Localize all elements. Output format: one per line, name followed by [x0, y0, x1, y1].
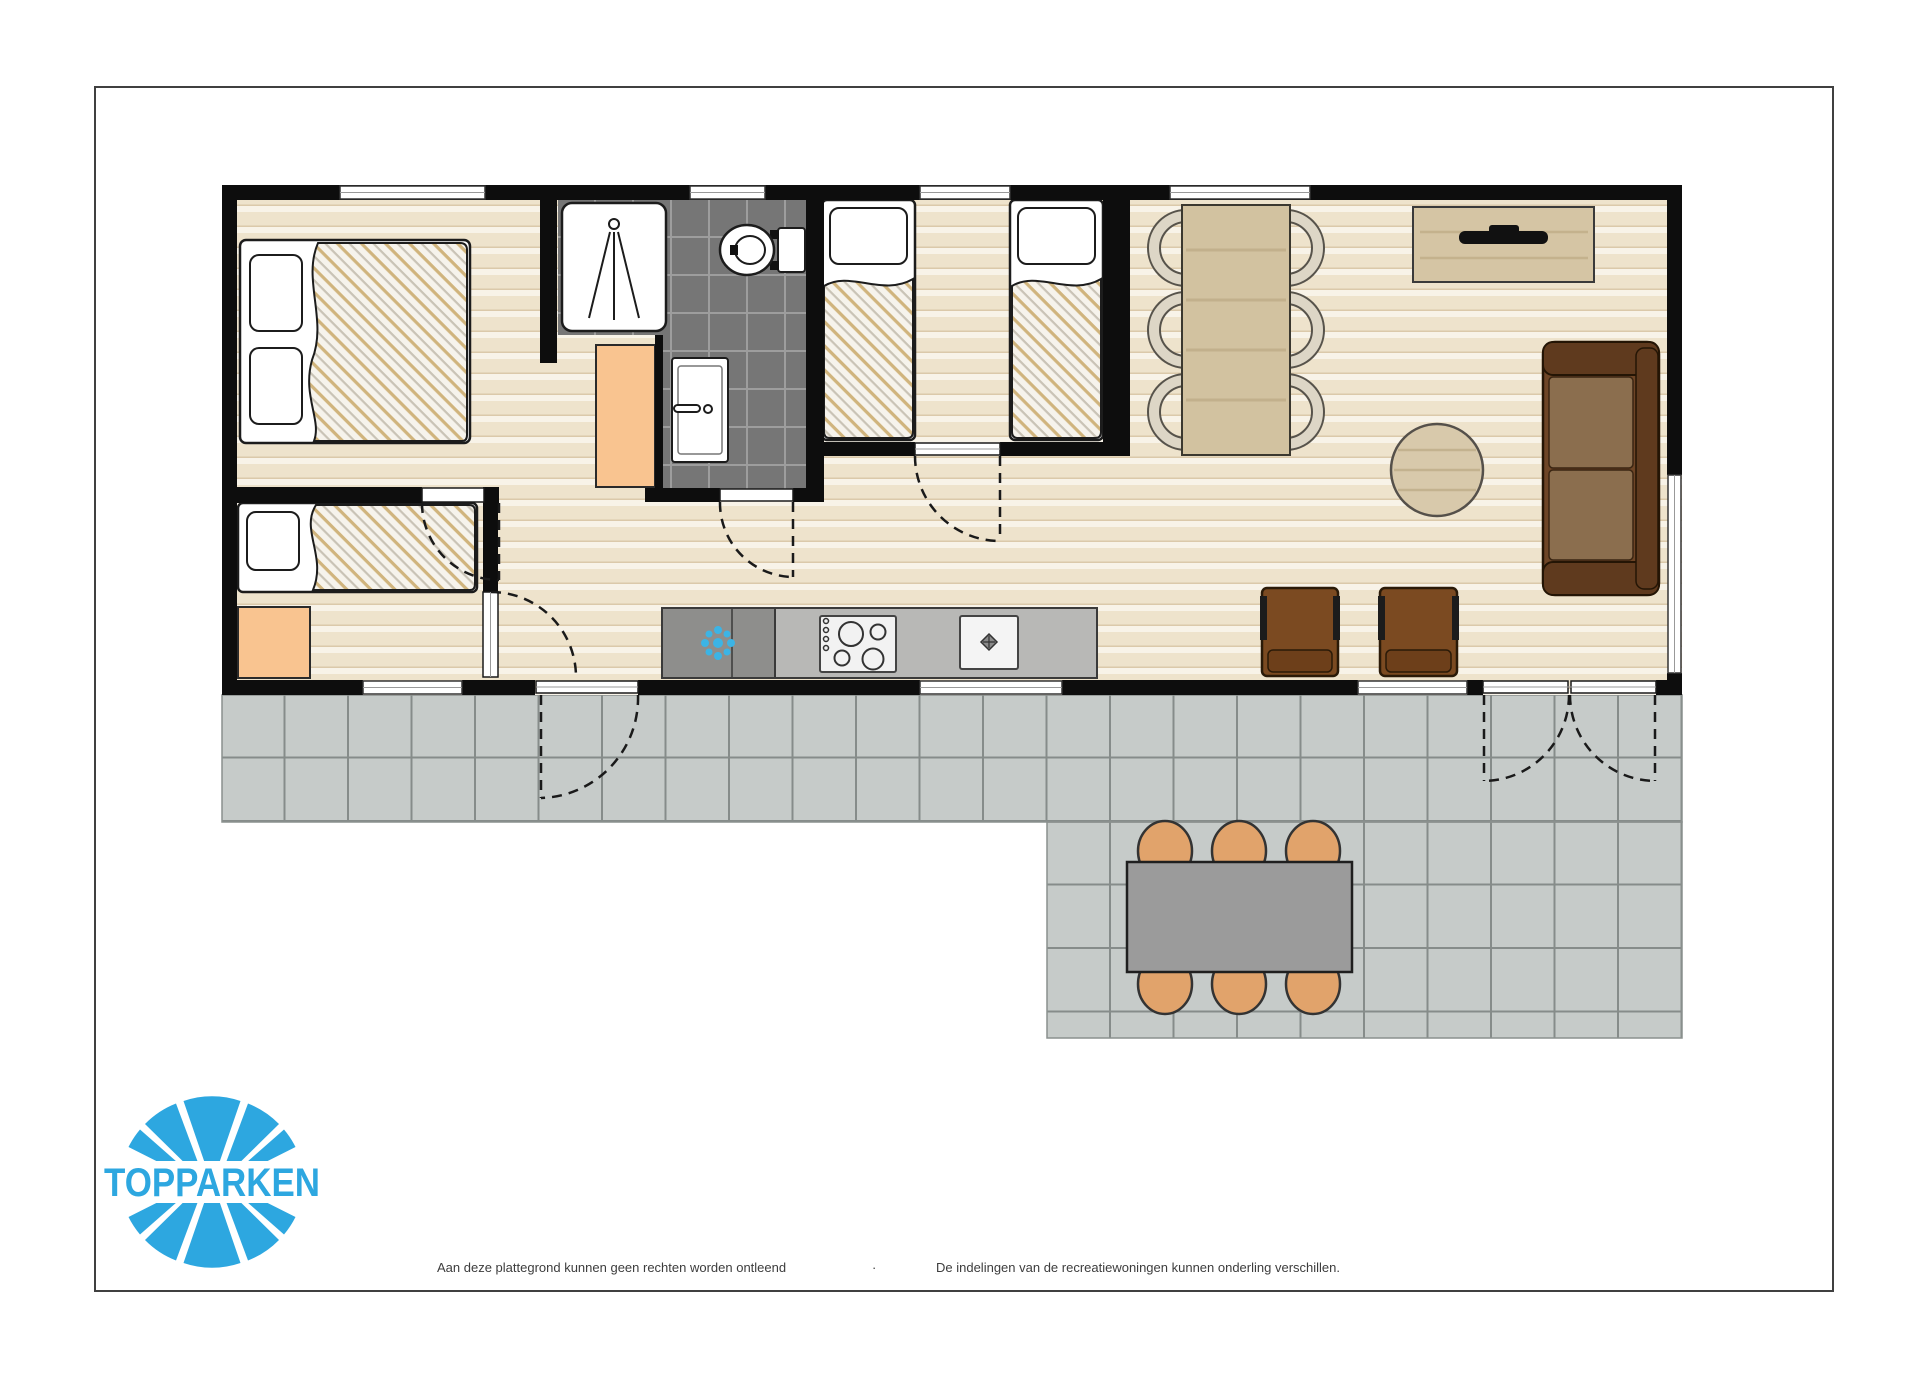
footer-disclaimer: Aan deze plattegrond kunnen geen rechten… — [0, 1260, 1920, 1280]
tv-icon — [1459, 231, 1548, 244]
logo-wordmark: TOPPARKEN — [104, 1161, 320, 1205]
duvet — [311, 505, 475, 590]
floorplan-page: TOPPARKEN Aan deze plattegrond kunnen ge… — [0, 0, 1920, 1394]
window — [1170, 186, 1310, 199]
window — [920, 186, 1010, 199]
kitchen — [662, 608, 1097, 678]
pillow — [1018, 208, 1095, 264]
garden-table — [1127, 862, 1352, 972]
armchair — [1260, 588, 1340, 676]
duvet — [824, 279, 913, 438]
disclaimer-separator: · — [872, 1260, 876, 1275]
duvet — [1012, 279, 1101, 438]
tv-cabinet — [1413, 207, 1594, 282]
cooktop — [820, 616, 896, 672]
terrace — [222, 695, 1682, 1038]
topparken-logo: TOPPARKEN — [100, 1068, 324, 1292]
pillow — [247, 512, 299, 570]
pillow — [830, 208, 907, 264]
garden-set — [1127, 821, 1352, 1014]
dining-table — [1182, 205, 1290, 455]
wardrobe — [596, 345, 655, 487]
pillow — [250, 255, 302, 331]
window — [363, 681, 462, 694]
window — [340, 186, 485, 199]
window — [920, 681, 1062, 694]
window — [690, 186, 765, 199]
window — [1668, 475, 1681, 673]
toilet — [720, 225, 805, 275]
disclaimer-right: De indelingen van de recreatiewoningen k… — [936, 1260, 1340, 1275]
washbasin — [672, 358, 728, 462]
disclaimer-left: Aan deze plattegrond kunnen geen rechten… — [437, 1260, 786, 1275]
wardrobe — [238, 607, 310, 678]
terrace-upper-band — [222, 695, 1682, 822]
round-side-table — [1391, 424, 1483, 516]
duvet — [309, 243, 467, 441]
sofa — [1543, 342, 1659, 595]
sink — [960, 616, 1018, 669]
armchair — [1378, 588, 1459, 676]
pillow — [250, 348, 302, 424]
window — [1358, 681, 1467, 694]
